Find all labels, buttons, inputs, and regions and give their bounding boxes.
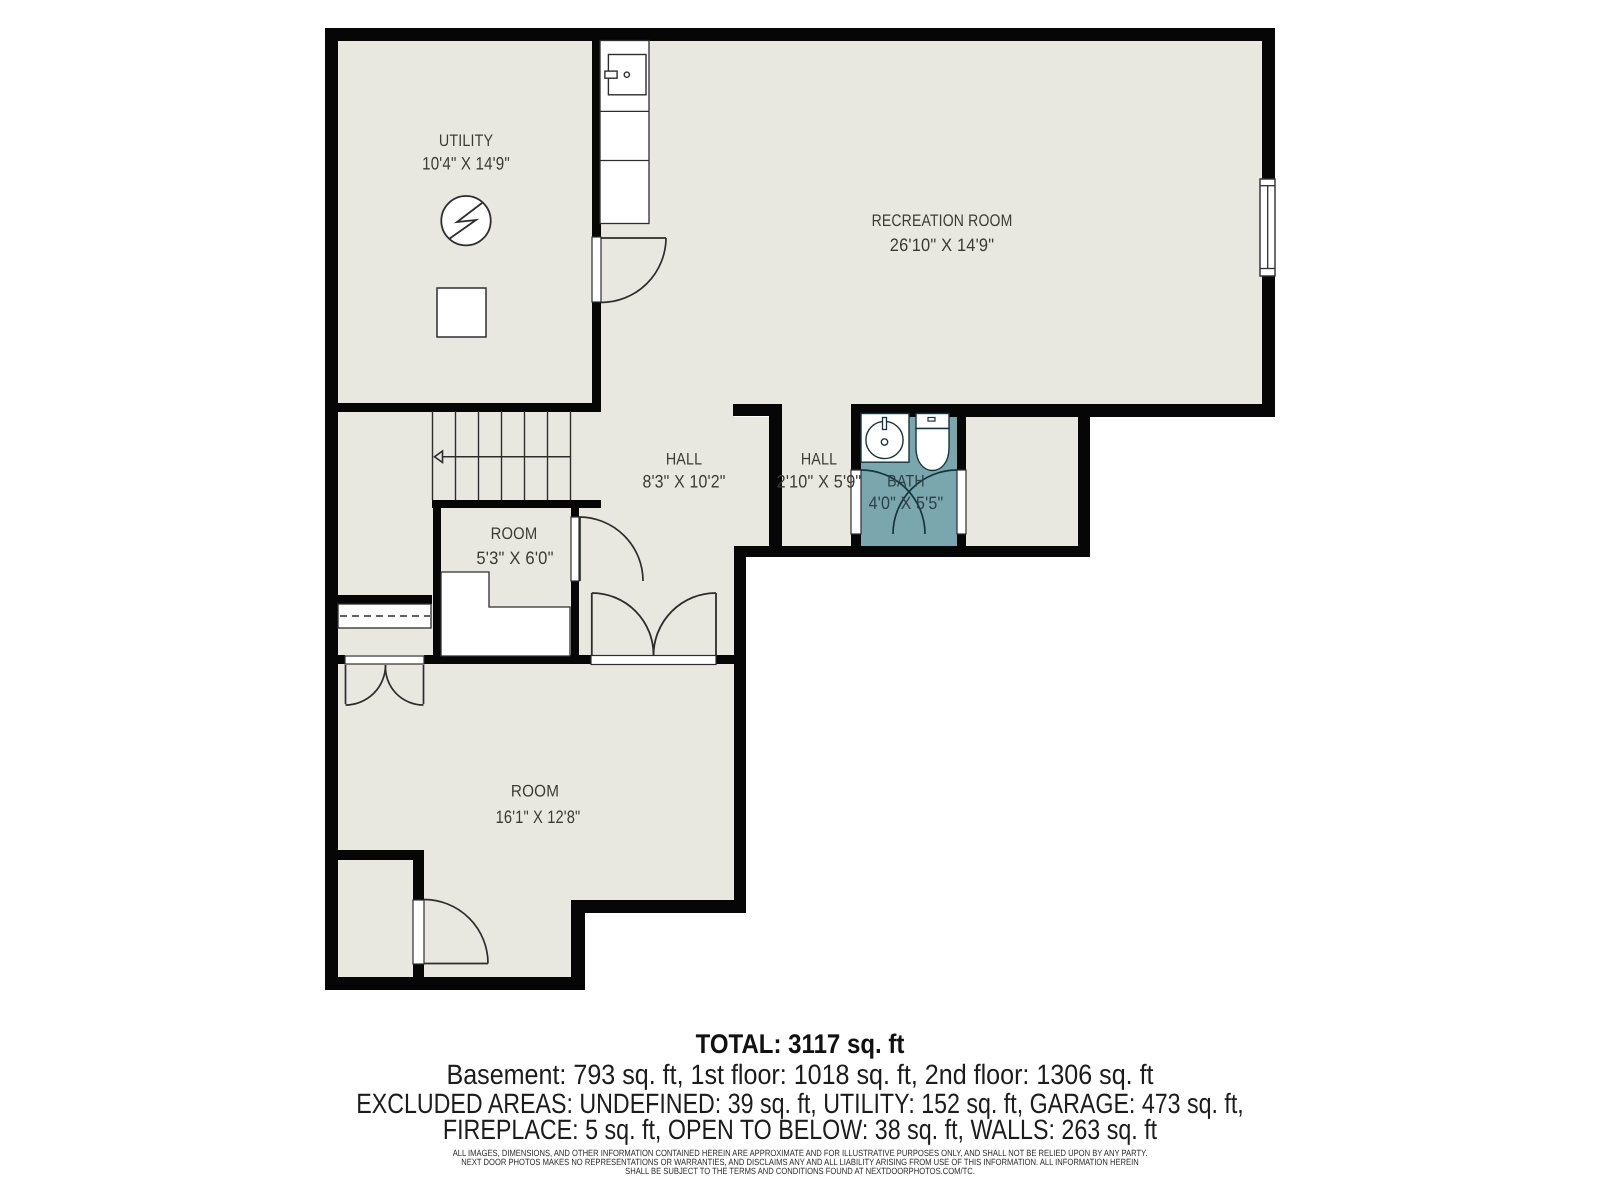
svg-text:10'4" X 14'9": 10'4" X 14'9" xyxy=(422,154,510,174)
svg-text:ROOM: ROOM xyxy=(491,524,538,543)
svg-text:8'3" X 10'2": 8'3" X 10'2" xyxy=(642,472,725,492)
svg-text:RECREATION ROOM: RECREATION ROOM xyxy=(872,211,1013,230)
svg-text:4'0" X 5'5": 4'0" X 5'5" xyxy=(869,493,944,513)
svg-text:ROOM: ROOM xyxy=(511,782,559,801)
svg-text:5'3" X 6'0": 5'3" X 6'0" xyxy=(476,548,553,568)
svg-text:BATH: BATH xyxy=(887,472,925,491)
svg-text:2'10" X 5'9": 2'10" X 5'9" xyxy=(777,472,862,492)
svg-text:Basement: 793 sq. ft, 1st floo: Basement: 793 sq. ft, 1st floor: 1018 sq… xyxy=(446,1059,1153,1090)
svg-text:TOTAL: 3117 sq. ft: TOTAL: 3117 sq. ft xyxy=(696,1029,905,1059)
svg-text:HALL: HALL xyxy=(666,450,702,469)
svg-text:FIREPLACE: 5 sq. ft, OPEN TO B: FIREPLACE: 5 sq. ft, OPEN TO BELOW: 38 s… xyxy=(443,1114,1157,1145)
svg-text:HALL: HALL xyxy=(801,450,837,469)
svg-text:SHALL BE SUBJECT TO THE TERMS: SHALL BE SUBJECT TO THE TERMS AND CONDIT… xyxy=(625,1166,975,1176)
svg-text:16'1" X 12'8": 16'1" X 12'8" xyxy=(496,807,581,827)
svg-text:UTILITY: UTILITY xyxy=(439,131,493,150)
svg-text:26'10" X 14'9": 26'10" X 14'9" xyxy=(890,235,994,255)
